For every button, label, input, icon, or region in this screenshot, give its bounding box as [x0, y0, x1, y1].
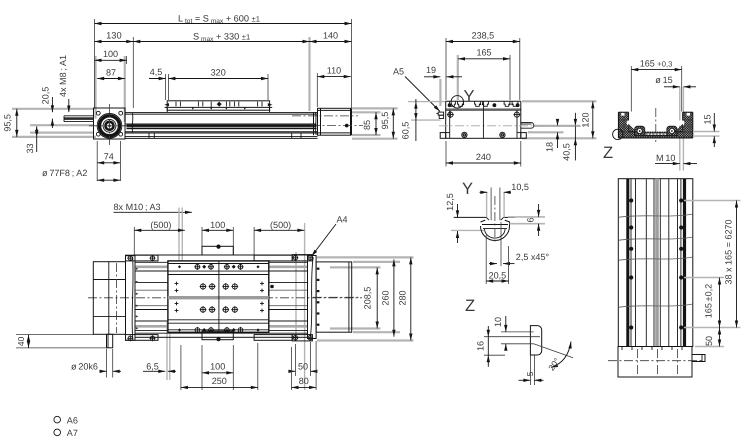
svg-text:320: 320: [211, 67, 226, 77]
svg-text:165 +0,3: 165 +0,3: [640, 58, 673, 68]
svg-text:18: 18: [544, 142, 554, 152]
svg-text:ø 15: ø 15: [655, 75, 672, 85]
svg-text:A4: A4: [337, 215, 348, 225]
svg-text:238,5: 238,5: [472, 30, 495, 40]
svg-text:165: 165: [476, 48, 491, 58]
svg-text:208,5: 208,5: [363, 287, 373, 310]
svg-text:100: 100: [210, 361, 225, 371]
svg-text:16: 16: [475, 341, 485, 351]
svg-text:95,5: 95,5: [380, 112, 390, 130]
svg-text:8x M10 ; A3: 8x M10 ; A3: [114, 202, 161, 212]
svg-text:140: 140: [323, 30, 338, 40]
svg-text:10,5: 10,5: [511, 182, 529, 192]
svg-text:110: 110: [327, 65, 341, 75]
svg-text:19: 19: [426, 65, 436, 75]
svg-text:A6: A6: [67, 415, 78, 425]
svg-text:20,5: 20,5: [489, 270, 507, 280]
svg-text:2,5 x45°: 2,5 x45°: [516, 252, 550, 262]
svg-text:250: 250: [212, 376, 227, 386]
svg-text:50: 50: [704, 336, 714, 346]
svg-text:85: 85: [362, 120, 372, 130]
svg-text:95,5: 95,5: [3, 114, 13, 132]
svg-text:6,5: 6,5: [146, 361, 159, 371]
svg-text:50: 50: [298, 361, 308, 371]
svg-text:Z: Z: [603, 144, 613, 162]
svg-text:(500): (500): [150, 220, 171, 230]
svg-text:M 10: M 10: [656, 153, 675, 163]
svg-text:6: 6: [525, 217, 535, 222]
svg-text:A5: A5: [393, 67, 404, 77]
svg-text:12,5: 12,5: [445, 193, 455, 211]
svg-text:40,5: 40,5: [562, 143, 572, 161]
svg-text:ø 77F8 ; A2: ø 77F8 ; A2: [42, 168, 87, 178]
svg-text:130: 130: [106, 30, 122, 40]
svg-text:60,5: 60,5: [401, 122, 411, 140]
svg-text:280: 280: [397, 290, 407, 305]
svg-text:5: 5: [525, 371, 535, 376]
svg-text:Z: Z: [465, 297, 475, 315]
svg-text:80: 80: [299, 376, 309, 386]
svg-text:4x M8 ; A1: 4x M8 ; A1: [58, 55, 68, 97]
svg-text:15: 15: [703, 114, 713, 124]
svg-text:38 x 165 = 6270: 38 x 165 = 6270: [724, 219, 734, 284]
svg-text:ø 20k6: ø 20k6: [71, 361, 98, 371]
svg-text:100: 100: [210, 220, 225, 230]
svg-text:74: 74: [104, 152, 114, 162]
svg-text:240: 240: [476, 152, 491, 162]
svg-text:Y: Y: [462, 180, 473, 198]
svg-text:Y: Y: [464, 88, 475, 106]
svg-text:10: 10: [493, 317, 503, 327]
svg-text:40: 40: [16, 337, 26, 347]
svg-text:120: 120: [581, 112, 591, 127]
svg-text:(500): (500): [270, 220, 291, 230]
svg-text:87: 87: [106, 67, 116, 77]
svg-text:20,5: 20,5: [41, 87, 51, 105]
svg-text:33: 33: [25, 143, 35, 153]
svg-text:4,5: 4,5: [150, 67, 163, 77]
svg-text:165 ±0,2: 165 ±0,2: [704, 284, 714, 318]
svg-text:260: 260: [381, 290, 391, 305]
svg-text:A7: A7: [67, 428, 78, 438]
svg-text:100: 100: [103, 49, 118, 59]
